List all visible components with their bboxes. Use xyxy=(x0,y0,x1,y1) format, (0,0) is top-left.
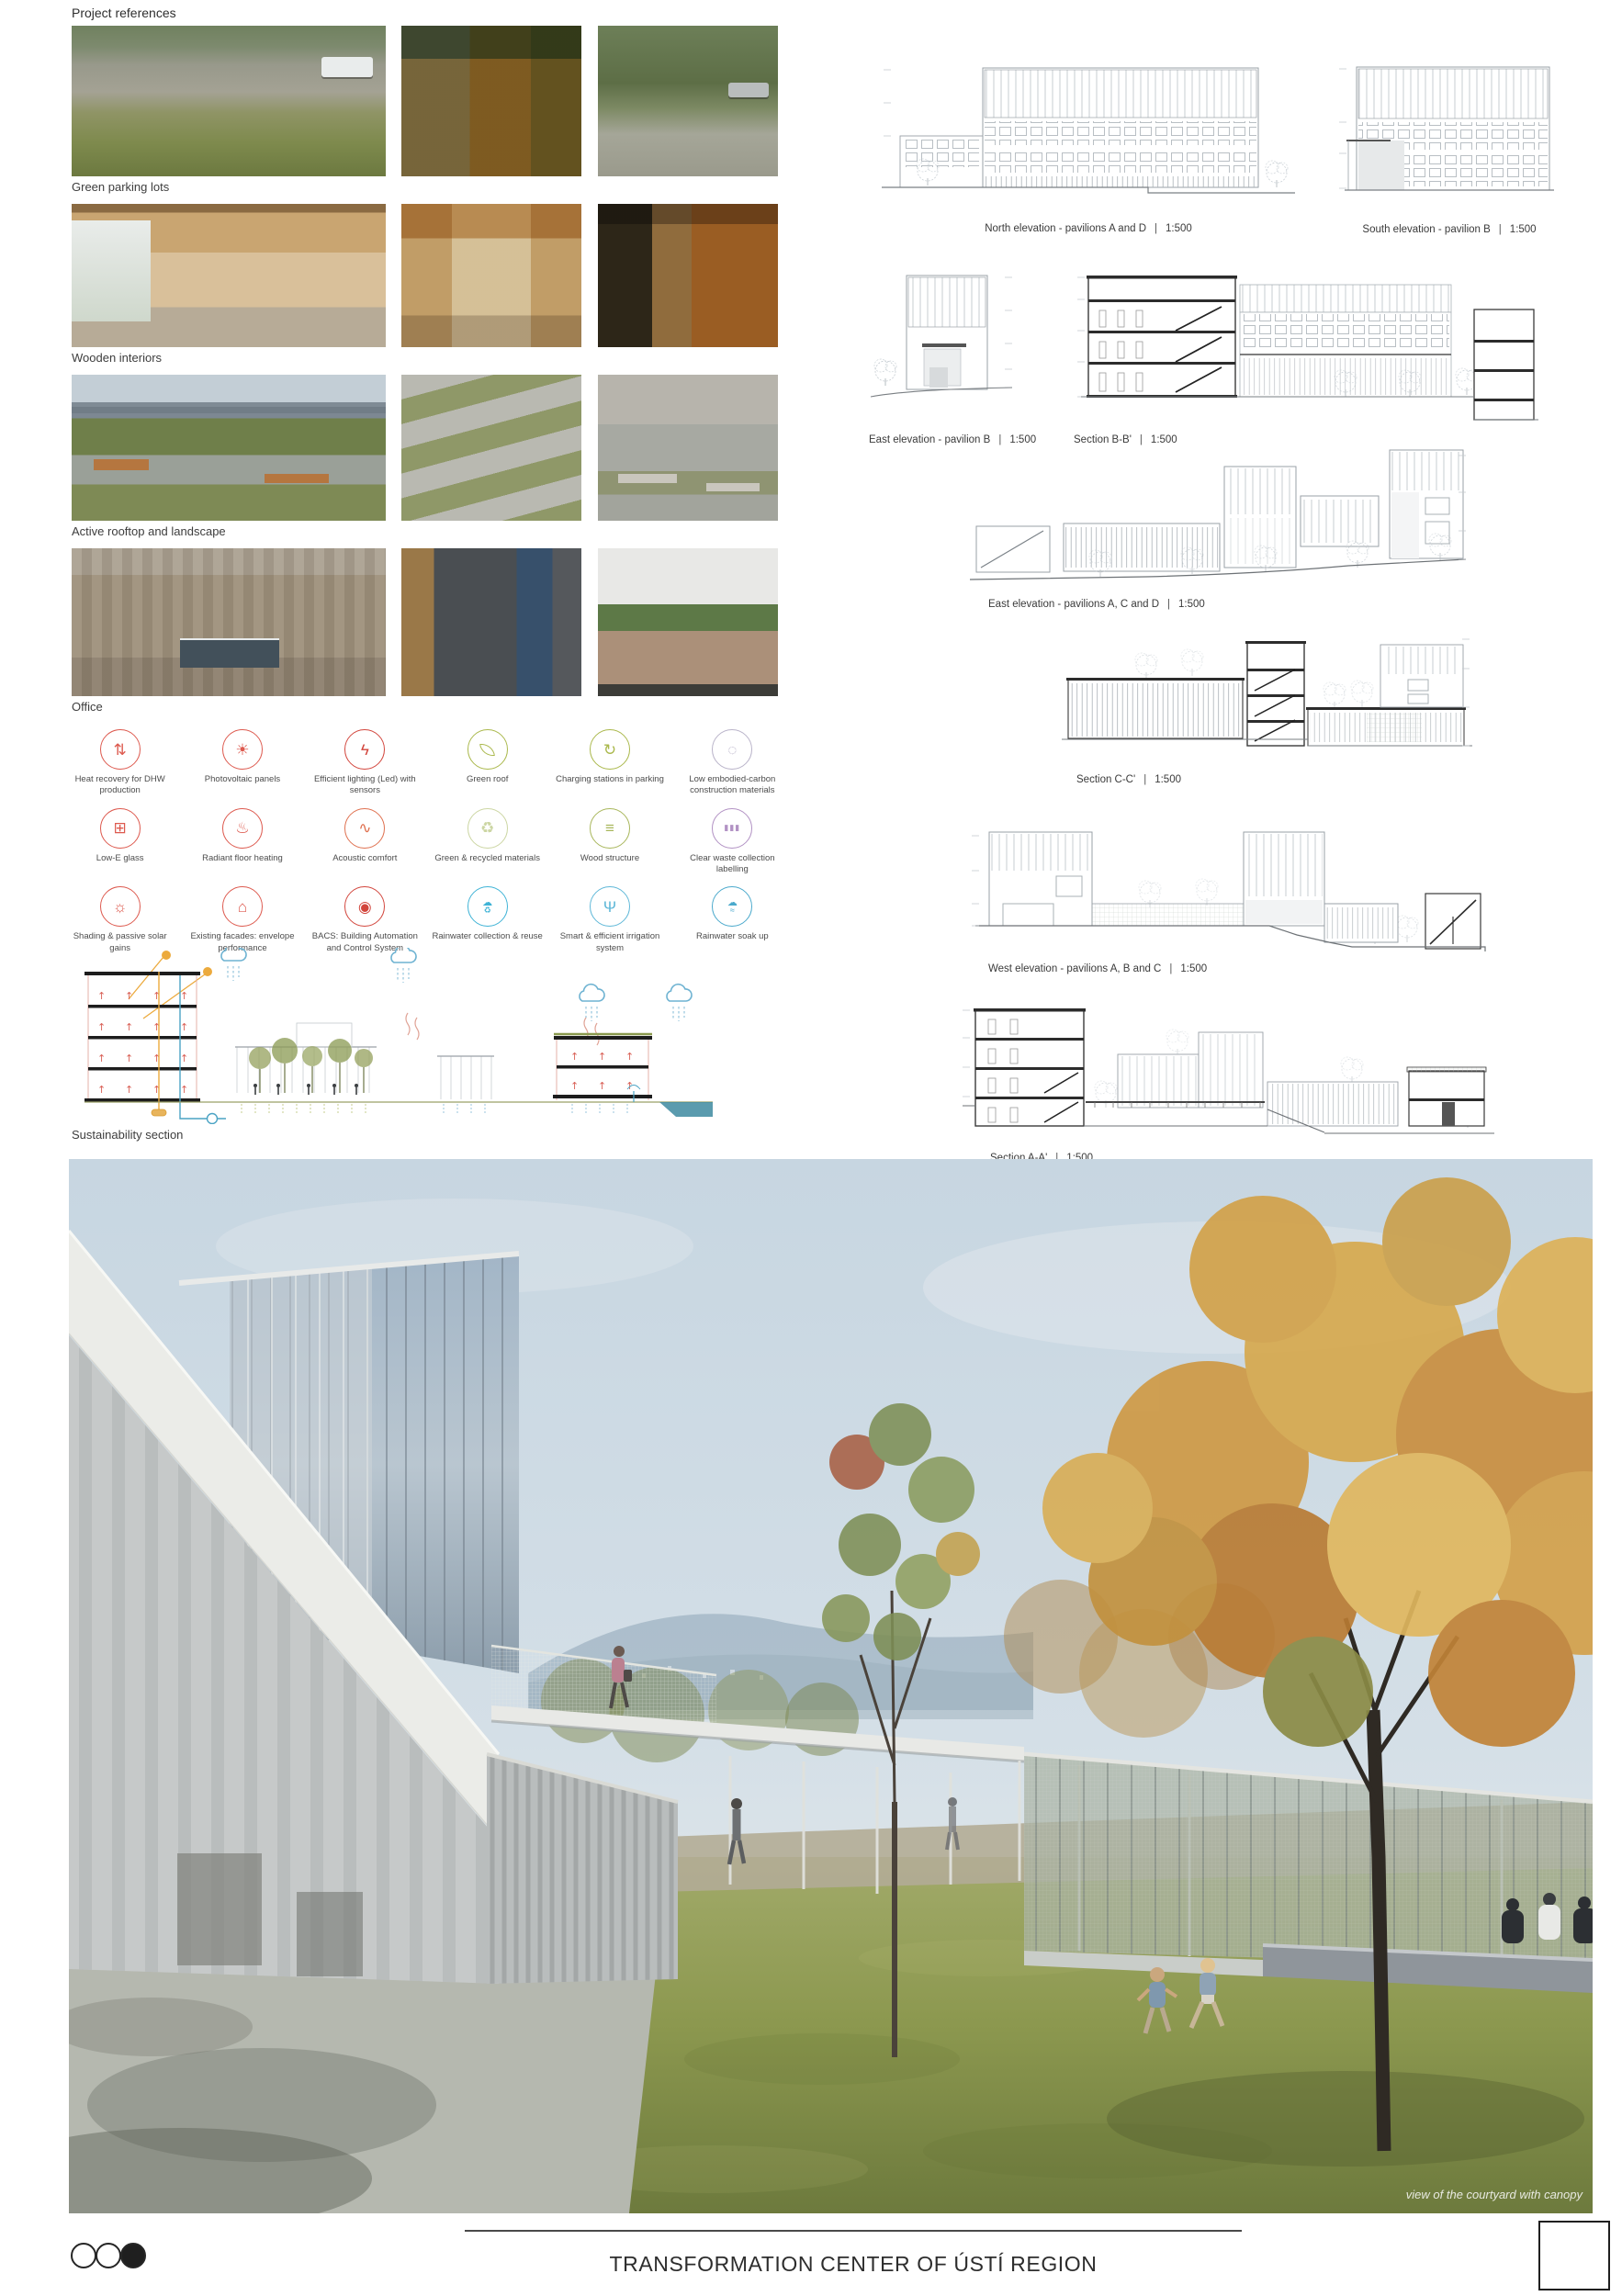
footer-divider-line xyxy=(465,2230,1242,2232)
drawing-caption: Section C-C'|1:500 xyxy=(1076,774,1477,785)
icon-cell: ☼Shading & passive solar gains xyxy=(64,886,175,954)
svg-text:↑: ↑ xyxy=(152,1084,161,1096)
photo-rooftop-1 xyxy=(72,375,386,521)
icon-cell: ☁♻Rainwater collection & reuse xyxy=(432,886,543,954)
drawing-section-cc: Section C-C'|1:500 xyxy=(1054,617,1477,785)
icon-cell: ♻Green & recycled materials xyxy=(432,808,543,876)
car-shape xyxy=(728,83,769,97)
row-caption-wooden-interiors: Wooden interiors xyxy=(72,351,162,365)
drawing-west-elevation: West elevation - pavilions A, B and C|1:… xyxy=(966,816,1490,974)
rainwater-soak-icon: ☁≈ xyxy=(712,886,752,927)
sustainability-section-label: Sustainability section xyxy=(72,1128,183,1142)
rainwater-collection-icon: ☁♻ xyxy=(467,886,508,927)
sun-rays xyxy=(129,951,212,1019)
icon-cell: ☁≈Rainwater soak up xyxy=(677,886,788,954)
drawing-east-elevation-b: East elevation - pavilion B|1:500 xyxy=(865,259,1040,445)
drawing-caption: North elevation - pavilions A and D|1:50… xyxy=(873,223,1304,234)
icon-cell: ≡Wood structure xyxy=(554,808,665,876)
right-building-section: ↑↑↑ ↑↑↑ xyxy=(553,1034,652,1100)
photo-office-3 xyxy=(598,548,778,696)
left-building-section: ↑↑↑↑ ↑↑↑↑ ↑↑↑↑ ↑↑↑↑ xyxy=(84,972,226,1124)
icon-cell: ⌂Existing facades: envelope performance xyxy=(186,886,298,954)
planter xyxy=(265,474,329,483)
svg-text:↑: ↑ xyxy=(125,1084,133,1096)
drawing-caption: South elevation - pavilion B|1:500 xyxy=(1334,224,1565,235)
rendering-caption: view of the courtyard with canopy xyxy=(1406,2188,1584,2201)
icon-cell: ◉BACS: Building Automation and Control S… xyxy=(310,886,421,954)
drawing-north-elevation: North elevation - pavilions A and D|1:50… xyxy=(873,48,1304,234)
photo-green-parking-2 xyxy=(401,26,581,176)
soak-dashes xyxy=(242,1104,366,1113)
icon-cell: ◌Low embodied-carbon construction materi… xyxy=(677,729,788,797)
svg-text:↑: ↑ xyxy=(97,1084,106,1096)
svg-text:↑: ↑ xyxy=(180,1021,188,1033)
svg-text:↑: ↑ xyxy=(97,1021,106,1033)
bacs-icon: ◉ xyxy=(344,886,385,927)
wood-structure-icon: ≡ xyxy=(590,808,630,849)
city-skyline xyxy=(72,402,386,413)
icon-cell: ΨSmart & efficient irrigation system xyxy=(554,886,665,954)
photo-wooden-interior-3 xyxy=(598,204,778,347)
efficient-lighting-icon: ϟ xyxy=(344,729,385,770)
board-title: TRANSFORMATION CENTER OF ÚSTÍ REGION xyxy=(465,2252,1242,2277)
planter xyxy=(94,459,149,470)
icon-cell: ♨Radiant floor heating xyxy=(186,808,298,876)
irrigation-icon: Ψ xyxy=(590,886,630,927)
row-caption-rooftop: Active rooftop and landscape xyxy=(72,524,226,538)
svg-text:↑: ↑ xyxy=(180,1052,188,1064)
existing-facades-icon: ⌂ xyxy=(222,886,263,927)
low-e-glass-icon: ⊞ xyxy=(100,808,141,849)
heat-recovery-icon: ⇅ xyxy=(100,729,141,770)
icon-cell: ☀Photovoltaic panels xyxy=(186,729,298,797)
svg-text:↑: ↑ xyxy=(570,1080,579,1092)
svg-text:↑: ↑ xyxy=(180,1084,188,1096)
svg-text:↑: ↑ xyxy=(125,990,133,1002)
sustainability-section-diagram: ↑↑↑↑ ↑↑↑↑ ↑↑↑↑ ↑↑↑↑ xyxy=(72,948,715,1129)
seated-people xyxy=(1502,1893,1593,1943)
svg-text:↑: ↑ xyxy=(598,1080,606,1092)
bench xyxy=(706,483,760,491)
icon-cell: ϟEfficient lighting (Led) with sensors xyxy=(310,729,421,797)
heat-squiggles xyxy=(406,1013,599,1045)
svg-text:↑: ↑ xyxy=(125,1052,133,1064)
acoustic-comfort-icon: ∿ xyxy=(344,808,385,849)
icon-cell: ▮▮▮Clear waste collection labelling xyxy=(677,808,788,876)
logo-circle-2 xyxy=(96,2243,121,2268)
presentation-board: Project references Green parking lots Wo… xyxy=(0,0,1622,2296)
svg-text:↑: ↑ xyxy=(180,990,188,1002)
low-carbon-materials-icon: ◌ xyxy=(712,729,752,770)
water-dashes xyxy=(444,1104,627,1113)
courtyard-trees xyxy=(249,1038,373,1093)
icon-cell: ⊞Low-E glass xyxy=(64,808,175,876)
logo-circle-3 xyxy=(120,2243,146,2268)
photo-green-parking-1 xyxy=(72,26,386,176)
window-light xyxy=(72,220,151,321)
icon-cell: ∿Acoustic comfort xyxy=(310,808,421,876)
photo-wooden-interior-2 xyxy=(401,204,581,347)
row-caption-office: Office xyxy=(72,700,103,714)
svg-text:↑: ↑ xyxy=(152,1052,161,1064)
drawing-caption: West elevation - pavilions A, B and C|1:… xyxy=(988,963,1490,974)
svg-text:↑: ↑ xyxy=(97,990,106,1002)
entry-opening xyxy=(297,1892,363,1976)
drawing-section-bb: Section B-B'|1:500 xyxy=(1070,259,1543,445)
entry-opening xyxy=(177,1853,262,1965)
charging-stations-icon: ↻ xyxy=(590,729,630,770)
drawing-caption: East elevation - pavilions A, C and D|1:… xyxy=(988,599,1472,610)
drawing-south-elevation: South elevation - pavilion B|1:500 xyxy=(1334,51,1565,235)
green-roof-icon xyxy=(467,729,508,770)
bench xyxy=(618,474,677,483)
svg-text:↑: ↑ xyxy=(125,1021,133,1033)
rain-cloud xyxy=(580,985,604,1021)
photo-office-2 xyxy=(401,548,581,696)
svg-text:↑: ↑ xyxy=(152,990,161,1002)
waste-labelling-icon: ▮▮▮ xyxy=(712,808,752,849)
icon-cell: Green roof xyxy=(432,729,543,797)
row-caption-green-parking: Green parking lots xyxy=(72,180,169,194)
logo-circles xyxy=(71,2243,145,2273)
ping-pong-table xyxy=(180,638,279,668)
photo-office-1 xyxy=(72,548,386,696)
photo-wooden-interior-1 xyxy=(72,204,386,347)
svg-text:↑: ↑ xyxy=(152,1021,161,1033)
car-shape xyxy=(321,57,373,77)
rain-cloud xyxy=(667,985,692,1021)
retention-pond xyxy=(659,1102,713,1117)
project-references-title: Project references xyxy=(72,6,176,20)
svg-text:↑: ↑ xyxy=(97,1052,106,1064)
logo-circle-1 xyxy=(71,2243,96,2268)
tree-shadow xyxy=(1107,2071,1584,2167)
svg-text:↑: ↑ xyxy=(570,1051,579,1063)
photovoltaic-icon: ☀ xyxy=(222,729,263,770)
drawing-section-aa: Section A-A'|1:500 xyxy=(957,999,1497,1164)
rain-cloud xyxy=(391,948,416,983)
photo-rooftop-3 xyxy=(598,375,778,521)
recycled-materials-icon: ♻ xyxy=(467,808,508,849)
courtyard-rendering: view of the courtyard with canopy xyxy=(69,1159,1593,2213)
icon-cell: ⇅Heat recovery for DHW production xyxy=(64,729,175,797)
drawing-east-elevation-acd: East elevation - pavilions A, C and D|1:… xyxy=(963,439,1472,610)
svg-text:↑: ↑ xyxy=(598,1051,606,1063)
page-number-box xyxy=(1538,2221,1610,2290)
sustainability-icon-grid: ⇅Heat recovery for DHW production ☀Photo… xyxy=(64,729,788,954)
icon-cell: ↻Charging stations in parking xyxy=(554,729,665,797)
svg-text:↑: ↑ xyxy=(625,1080,634,1092)
radiant-floor-heating-icon: ♨ xyxy=(222,808,263,849)
photo-green-parking-3 xyxy=(598,26,778,176)
svg-text:↑: ↑ xyxy=(625,1051,634,1063)
photo-rooftop-2 xyxy=(401,375,581,521)
second-hall xyxy=(437,1056,494,1099)
shading-solar-icon: ☼ xyxy=(100,886,141,927)
rain-cloud xyxy=(221,948,246,981)
